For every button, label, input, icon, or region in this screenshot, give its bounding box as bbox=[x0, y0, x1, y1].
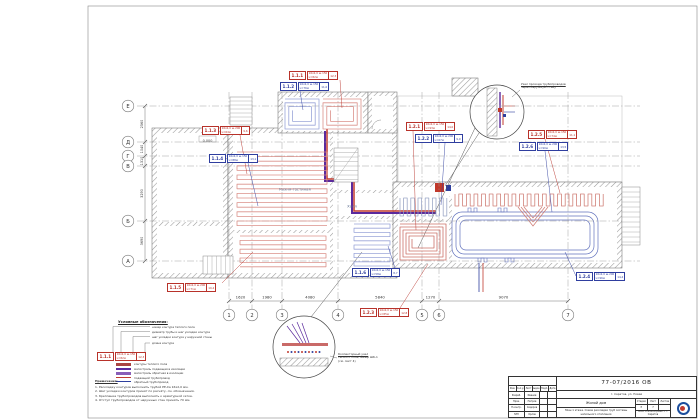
room-top bbox=[372, 96, 393, 129]
dim-value: 2560 bbox=[140, 120, 144, 129]
legend-pointer-line bbox=[113, 327, 150, 353]
grid-bubble-label: Б bbox=[126, 219, 130, 225]
dim-value: 1270 bbox=[426, 295, 436, 300]
manifold-box bbox=[435, 183, 444, 192]
legend-pointer-line bbox=[121, 332, 150, 353]
grid-bubble-label: 2 bbox=[250, 313, 253, 319]
dim-value: 3290 bbox=[140, 189, 144, 198]
wall-partition bbox=[398, 219, 450, 222]
legend-pointer-line bbox=[133, 337, 150, 353]
grid-bubble-label: Д bbox=[126, 140, 130, 146]
dim-value: 5840 bbox=[375, 295, 385, 300]
grid-bubble-label: 5 bbox=[420, 313, 423, 319]
grid-bubble-label: А bbox=[126, 259, 130, 265]
wall-partition bbox=[233, 230, 330, 233]
grid-bubble-label: 6 bbox=[437, 313, 440, 319]
grid-bubble-label: 1 bbox=[227, 313, 230, 319]
wall-pier bbox=[452, 78, 478, 96]
drawing-sheet: 1234567162019804080584012709070ЕДГВБА256… bbox=[0, 0, 700, 420]
legend-pointer-line bbox=[145, 343, 150, 352]
dim-value: 1040 bbox=[140, 145, 144, 154]
wall-partition bbox=[333, 190, 392, 193]
elevation-mark bbox=[199, 136, 216, 142]
dim-value: 1620 bbox=[236, 295, 246, 300]
wall-partition bbox=[333, 216, 392, 219]
grid-bubble-label: В bbox=[126, 164, 130, 170]
grid-bubble-label: 3 bbox=[280, 313, 283, 319]
dim-value: 3690 bbox=[140, 237, 144, 246]
walls bbox=[152, 78, 622, 278]
grid-bubble-label: Е bbox=[126, 104, 129, 110]
wall-partition bbox=[449, 196, 452, 263]
grid-bubble-label: Г bbox=[126, 154, 129, 160]
floor-plan-svg: 1234567162019804080584012709070ЕДГВБА256… bbox=[0, 0, 700, 420]
stairs bbox=[622, 187, 640, 245]
wall-partition bbox=[157, 222, 223, 226]
dim-value: 1310 bbox=[140, 157, 144, 166]
grid-bubble-label: 7 bbox=[566, 313, 569, 319]
dim-value: 4080 bbox=[305, 295, 315, 300]
dim-value: 1980 bbox=[262, 295, 272, 300]
room-garage bbox=[157, 133, 223, 273]
callout-leader bbox=[400, 264, 428, 308]
wall-partition bbox=[330, 133, 333, 273]
dim-value: 9070 bbox=[499, 295, 509, 300]
